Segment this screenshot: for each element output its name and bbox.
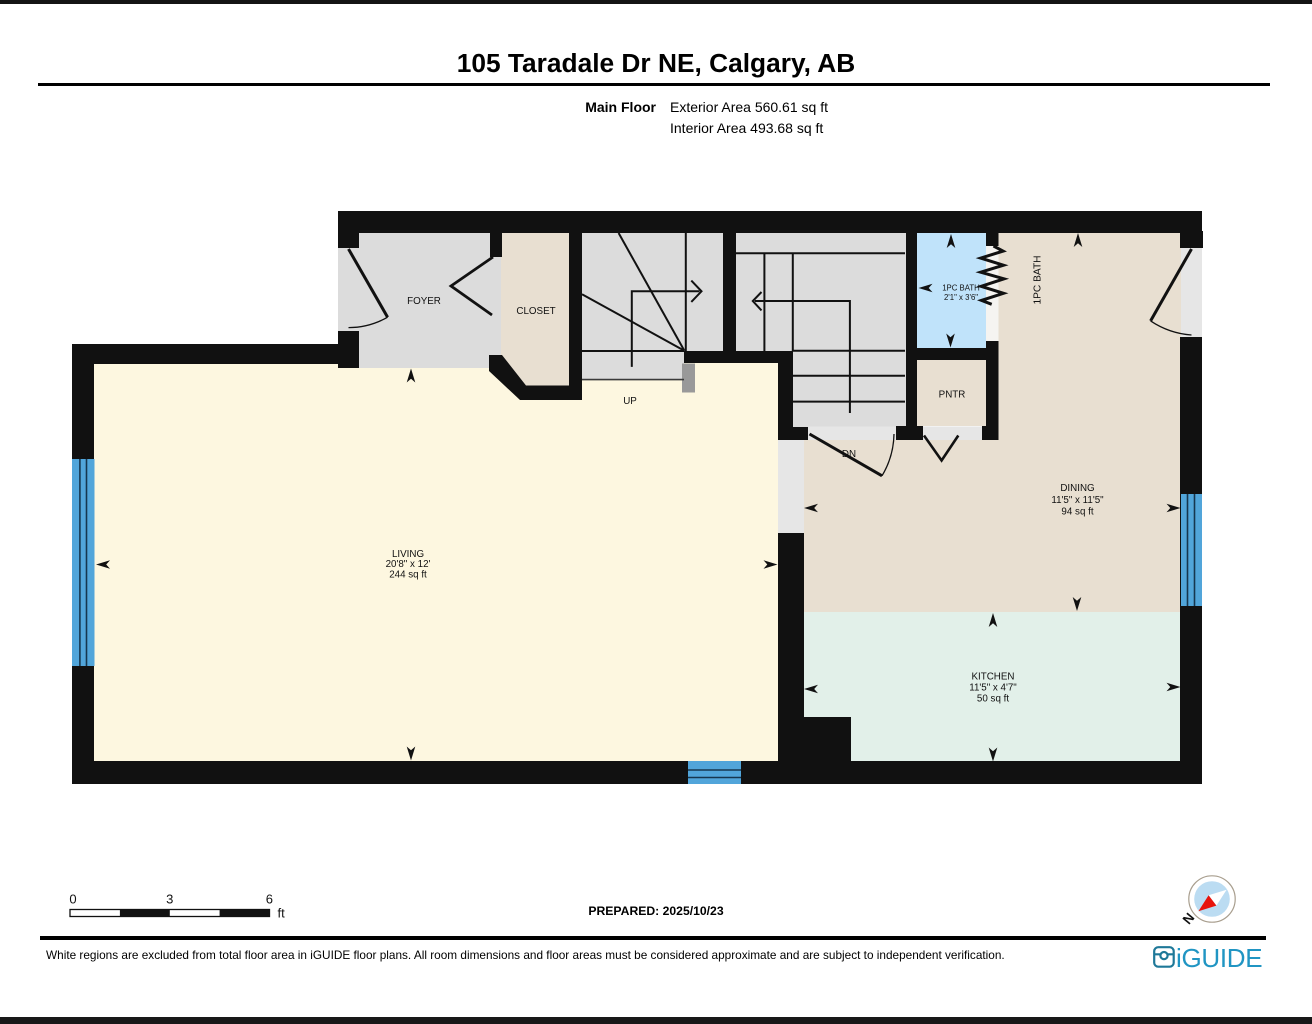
svg-text:UP: UP — [623, 396, 637, 407]
svg-text:FOYER: FOYER — [407, 296, 441, 307]
svg-text:DN: DN — [842, 449, 856, 460]
svg-text:iGUIDE: iGUIDE — [1176, 943, 1262, 971]
svg-text:LIVING20'8" x 12'244 sq ft: LIVING20'8" x 12'244 sq ft — [386, 549, 431, 581]
svg-text:1PC BATH2'1" x 3'6": 1PC BATH2'1" x 3'6" — [942, 284, 980, 302]
svg-text:PNTR: PNTR — [939, 390, 966, 401]
svg-text:1PC BATH: 1PC BATH — [1033, 255, 1044, 304]
svg-text:CLOSET: CLOSET — [516, 306, 555, 317]
